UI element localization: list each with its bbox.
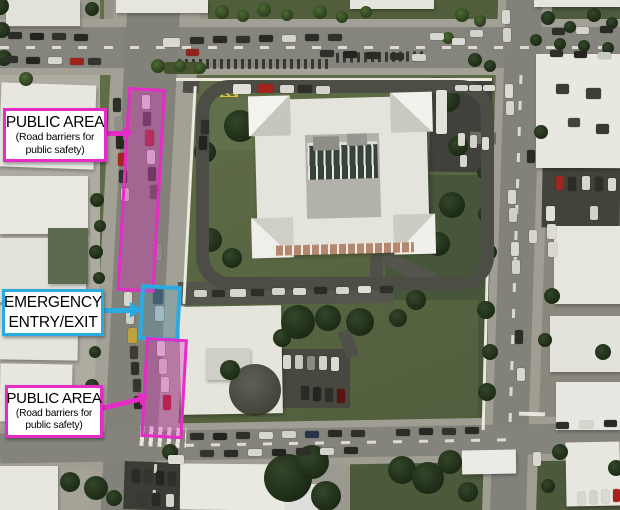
tree bbox=[587, 8, 601, 22]
car bbox=[343, 51, 357, 58]
car bbox=[508, 190, 516, 204]
car bbox=[568, 118, 580, 127]
car bbox=[582, 176, 590, 190]
tree bbox=[595, 344, 611, 360]
building bbox=[534, 0, 620, 7]
car bbox=[70, 58, 84, 65]
car bbox=[26, 57, 40, 64]
building bbox=[462, 450, 516, 475]
car bbox=[296, 448, 310, 455]
tree bbox=[194, 62, 206, 74]
inner-courtyard bbox=[305, 133, 381, 219]
car bbox=[168, 455, 184, 464]
car bbox=[396, 429, 410, 436]
tree bbox=[478, 383, 496, 401]
car bbox=[344, 447, 358, 454]
tree bbox=[564, 21, 576, 33]
tree bbox=[313, 5, 327, 19]
car bbox=[168, 472, 176, 486]
car bbox=[224, 450, 238, 457]
car bbox=[337, 389, 345, 403]
car bbox=[548, 242, 557, 257]
tree bbox=[94, 220, 106, 232]
car bbox=[313, 387, 321, 401]
tree bbox=[311, 481, 341, 510]
car bbox=[380, 286, 393, 293]
car bbox=[436, 90, 447, 134]
car bbox=[512, 260, 520, 274]
roof-pavilion-ne bbox=[390, 92, 433, 133]
tree bbox=[60, 472, 80, 492]
tree bbox=[273, 329, 291, 347]
car bbox=[529, 230, 537, 243]
car bbox=[556, 422, 569, 429]
tree bbox=[455, 8, 469, 22]
car bbox=[213, 36, 227, 43]
car bbox=[358, 286, 371, 293]
car bbox=[282, 431, 296, 438]
label-line: EMERGENCY bbox=[4, 293, 102, 312]
main-building bbox=[254, 96, 430, 254]
label-subtitle: (Road barriers for bbox=[16, 131, 95, 143]
arrow-icon bbox=[107, 126, 133, 140]
building bbox=[0, 466, 58, 510]
car bbox=[251, 289, 264, 296]
car bbox=[465, 427, 479, 434]
car bbox=[280, 85, 294, 93]
car bbox=[166, 494, 174, 507]
tree bbox=[89, 346, 101, 358]
car bbox=[74, 34, 88, 41]
car bbox=[272, 288, 285, 295]
car bbox=[305, 34, 319, 41]
car bbox=[138, 492, 146, 505]
label-subtitle: public safety) bbox=[25, 144, 84, 156]
car bbox=[595, 177, 603, 191]
car bbox=[390, 53, 404, 60]
rooftop-equipment bbox=[347, 133, 367, 146]
car bbox=[201, 120, 209, 134]
tree bbox=[151, 59, 165, 73]
arrow-shaft bbox=[107, 131, 123, 136]
car bbox=[213, 433, 227, 440]
car bbox=[503, 28, 511, 42]
building bbox=[550, 316, 620, 372]
car bbox=[598, 52, 611, 59]
tree bbox=[215, 5, 229, 19]
car bbox=[586, 88, 601, 99]
car bbox=[236, 432, 250, 439]
car bbox=[328, 34, 342, 41]
car bbox=[442, 428, 456, 435]
arrow-head bbox=[123, 126, 133, 140]
tree bbox=[468, 53, 482, 67]
car bbox=[295, 355, 303, 369]
tree bbox=[106, 490, 122, 506]
tree bbox=[541, 11, 555, 25]
tree bbox=[281, 9, 293, 21]
car bbox=[556, 84, 569, 94]
car bbox=[331, 357, 339, 371]
car bbox=[128, 328, 137, 343]
car bbox=[190, 433, 204, 440]
tree bbox=[482, 344, 498, 360]
public-area-label-bottom: PUBLIC AREA (Road barriers for public sa… bbox=[5, 385, 103, 438]
car bbox=[4, 56, 18, 63]
tree bbox=[346, 308, 374, 336]
car bbox=[319, 356, 327, 370]
car bbox=[482, 137, 489, 150]
car bbox=[452, 38, 465, 45]
tree bbox=[554, 38, 566, 50]
car bbox=[502, 10, 510, 24]
tree bbox=[315, 305, 341, 331]
building bbox=[6, 0, 80, 26]
car bbox=[430, 33, 444, 40]
parking-lot bbox=[183, 80, 200, 94]
label-title: PUBLIC AREA bbox=[6, 114, 104, 131]
rooftop-equipment bbox=[313, 136, 339, 151]
road-marking bbox=[0, 46, 620, 49]
car bbox=[186, 49, 199, 56]
car bbox=[233, 84, 251, 94]
tree bbox=[19, 72, 33, 86]
car bbox=[88, 58, 101, 65]
car bbox=[590, 206, 598, 220]
tree bbox=[237, 10, 249, 22]
car bbox=[133, 379, 141, 392]
tree bbox=[474, 15, 486, 27]
tree bbox=[477, 301, 495, 319]
car bbox=[152, 493, 160, 506]
tree bbox=[336, 11, 348, 23]
car bbox=[163, 38, 180, 47]
car bbox=[602, 490, 609, 503]
car bbox=[505, 84, 513, 98]
tree bbox=[89, 245, 103, 259]
car bbox=[282, 35, 296, 42]
emergency-entry-highlight bbox=[138, 284, 182, 342]
car bbox=[506, 101, 514, 115]
car bbox=[293, 288, 306, 295]
car bbox=[527, 150, 535, 163]
tree bbox=[458, 482, 478, 502]
car bbox=[470, 30, 483, 37]
car bbox=[156, 471, 164, 485]
car bbox=[470, 135, 477, 148]
tree bbox=[530, 34, 542, 46]
tree bbox=[534, 125, 548, 139]
tree bbox=[406, 290, 426, 310]
car bbox=[320, 448, 334, 455]
car bbox=[613, 489, 620, 502]
road-marking bbox=[519, 412, 545, 417]
tree bbox=[538, 333, 552, 347]
tree bbox=[608, 460, 620, 476]
car bbox=[212, 290, 225, 297]
car bbox=[550, 50, 563, 57]
car bbox=[283, 355, 291, 369]
car bbox=[517, 368, 525, 381]
tree bbox=[257, 3, 271, 17]
car bbox=[458, 133, 465, 146]
car bbox=[48, 57, 62, 64]
tree bbox=[552, 444, 568, 460]
car bbox=[200, 450, 214, 457]
car bbox=[608, 178, 616, 191]
car bbox=[580, 421, 593, 428]
aerial-map: PUBLIC AREA (Road barriers for public sa… bbox=[0, 0, 620, 510]
arrow-shaft bbox=[102, 308, 130, 313]
label-subtitle: (Road barriers for bbox=[16, 408, 92, 420]
tree bbox=[389, 309, 407, 327]
car bbox=[113, 98, 121, 112]
building bbox=[48, 228, 88, 284]
label-subtitle: public safety) bbox=[25, 420, 82, 432]
car bbox=[568, 177, 576, 191]
car bbox=[552, 28, 565, 35]
car bbox=[460, 155, 467, 167]
car bbox=[325, 388, 333, 402]
car bbox=[248, 449, 262, 456]
car bbox=[600, 26, 613, 33]
car bbox=[259, 432, 273, 439]
car bbox=[258, 84, 273, 93]
car bbox=[199, 136, 207, 150]
tree bbox=[360, 6, 372, 18]
car bbox=[455, 85, 468, 91]
car bbox=[307, 356, 315, 370]
car bbox=[533, 452, 541, 466]
arrow-icon bbox=[102, 302, 142, 318]
public-area-label-top: PUBLIC AREA (Road barriers for public sa… bbox=[3, 108, 107, 162]
car bbox=[546, 206, 555, 221]
label-line: ENTRY/EXIT bbox=[8, 313, 97, 332]
car bbox=[130, 346, 138, 359]
car bbox=[366, 52, 380, 59]
car bbox=[590, 491, 597, 504]
label-title: PUBLIC AREA bbox=[6, 391, 101, 408]
tree bbox=[544, 288, 560, 304]
tree bbox=[84, 476, 108, 500]
car bbox=[419, 428, 433, 435]
car bbox=[483, 85, 495, 91]
tree bbox=[85, 2, 99, 16]
car bbox=[328, 430, 342, 437]
car bbox=[509, 208, 517, 222]
car bbox=[131, 362, 139, 375]
tree bbox=[438, 450, 462, 474]
emergency-entry-exit-label: EMERGENCY ENTRY/EXIT bbox=[2, 289, 104, 336]
tree bbox=[174, 60, 186, 72]
car bbox=[301, 386, 309, 400]
building bbox=[116, 0, 208, 13]
car bbox=[511, 242, 519, 256]
tree bbox=[484, 60, 496, 72]
tree bbox=[90, 193, 104, 207]
car bbox=[547, 224, 556, 239]
car bbox=[272, 449, 286, 456]
car bbox=[8, 32, 22, 39]
car bbox=[194, 290, 207, 297]
tree bbox=[541, 479, 555, 493]
arrow-head bbox=[130, 302, 142, 318]
car bbox=[190, 37, 204, 44]
car bbox=[30, 33, 44, 40]
car bbox=[144, 470, 152, 484]
car bbox=[351, 430, 365, 437]
car bbox=[574, 51, 587, 58]
tree bbox=[220, 360, 240, 380]
car bbox=[316, 86, 330, 94]
car bbox=[515, 330, 523, 344]
car bbox=[320, 50, 334, 57]
building bbox=[554, 226, 620, 304]
car bbox=[298, 85, 312, 93]
car bbox=[132, 469, 140, 483]
car bbox=[259, 35, 273, 42]
car bbox=[578, 492, 585, 505]
building bbox=[536, 54, 620, 168]
tree bbox=[93, 272, 105, 284]
car bbox=[336, 287, 349, 294]
car bbox=[230, 289, 246, 297]
building bbox=[0, 176, 88, 234]
car bbox=[576, 27, 589, 34]
car bbox=[52, 33, 66, 40]
car bbox=[469, 85, 482, 91]
car bbox=[556, 176, 564, 190]
car bbox=[305, 431, 319, 438]
roof-pavilion-nw bbox=[248, 95, 291, 136]
public-area-highlight-bottom bbox=[140, 337, 188, 439]
car bbox=[236, 36, 250, 43]
car bbox=[596, 124, 609, 134]
car bbox=[412, 54, 426, 61]
car bbox=[604, 420, 617, 427]
car bbox=[314, 287, 327, 294]
